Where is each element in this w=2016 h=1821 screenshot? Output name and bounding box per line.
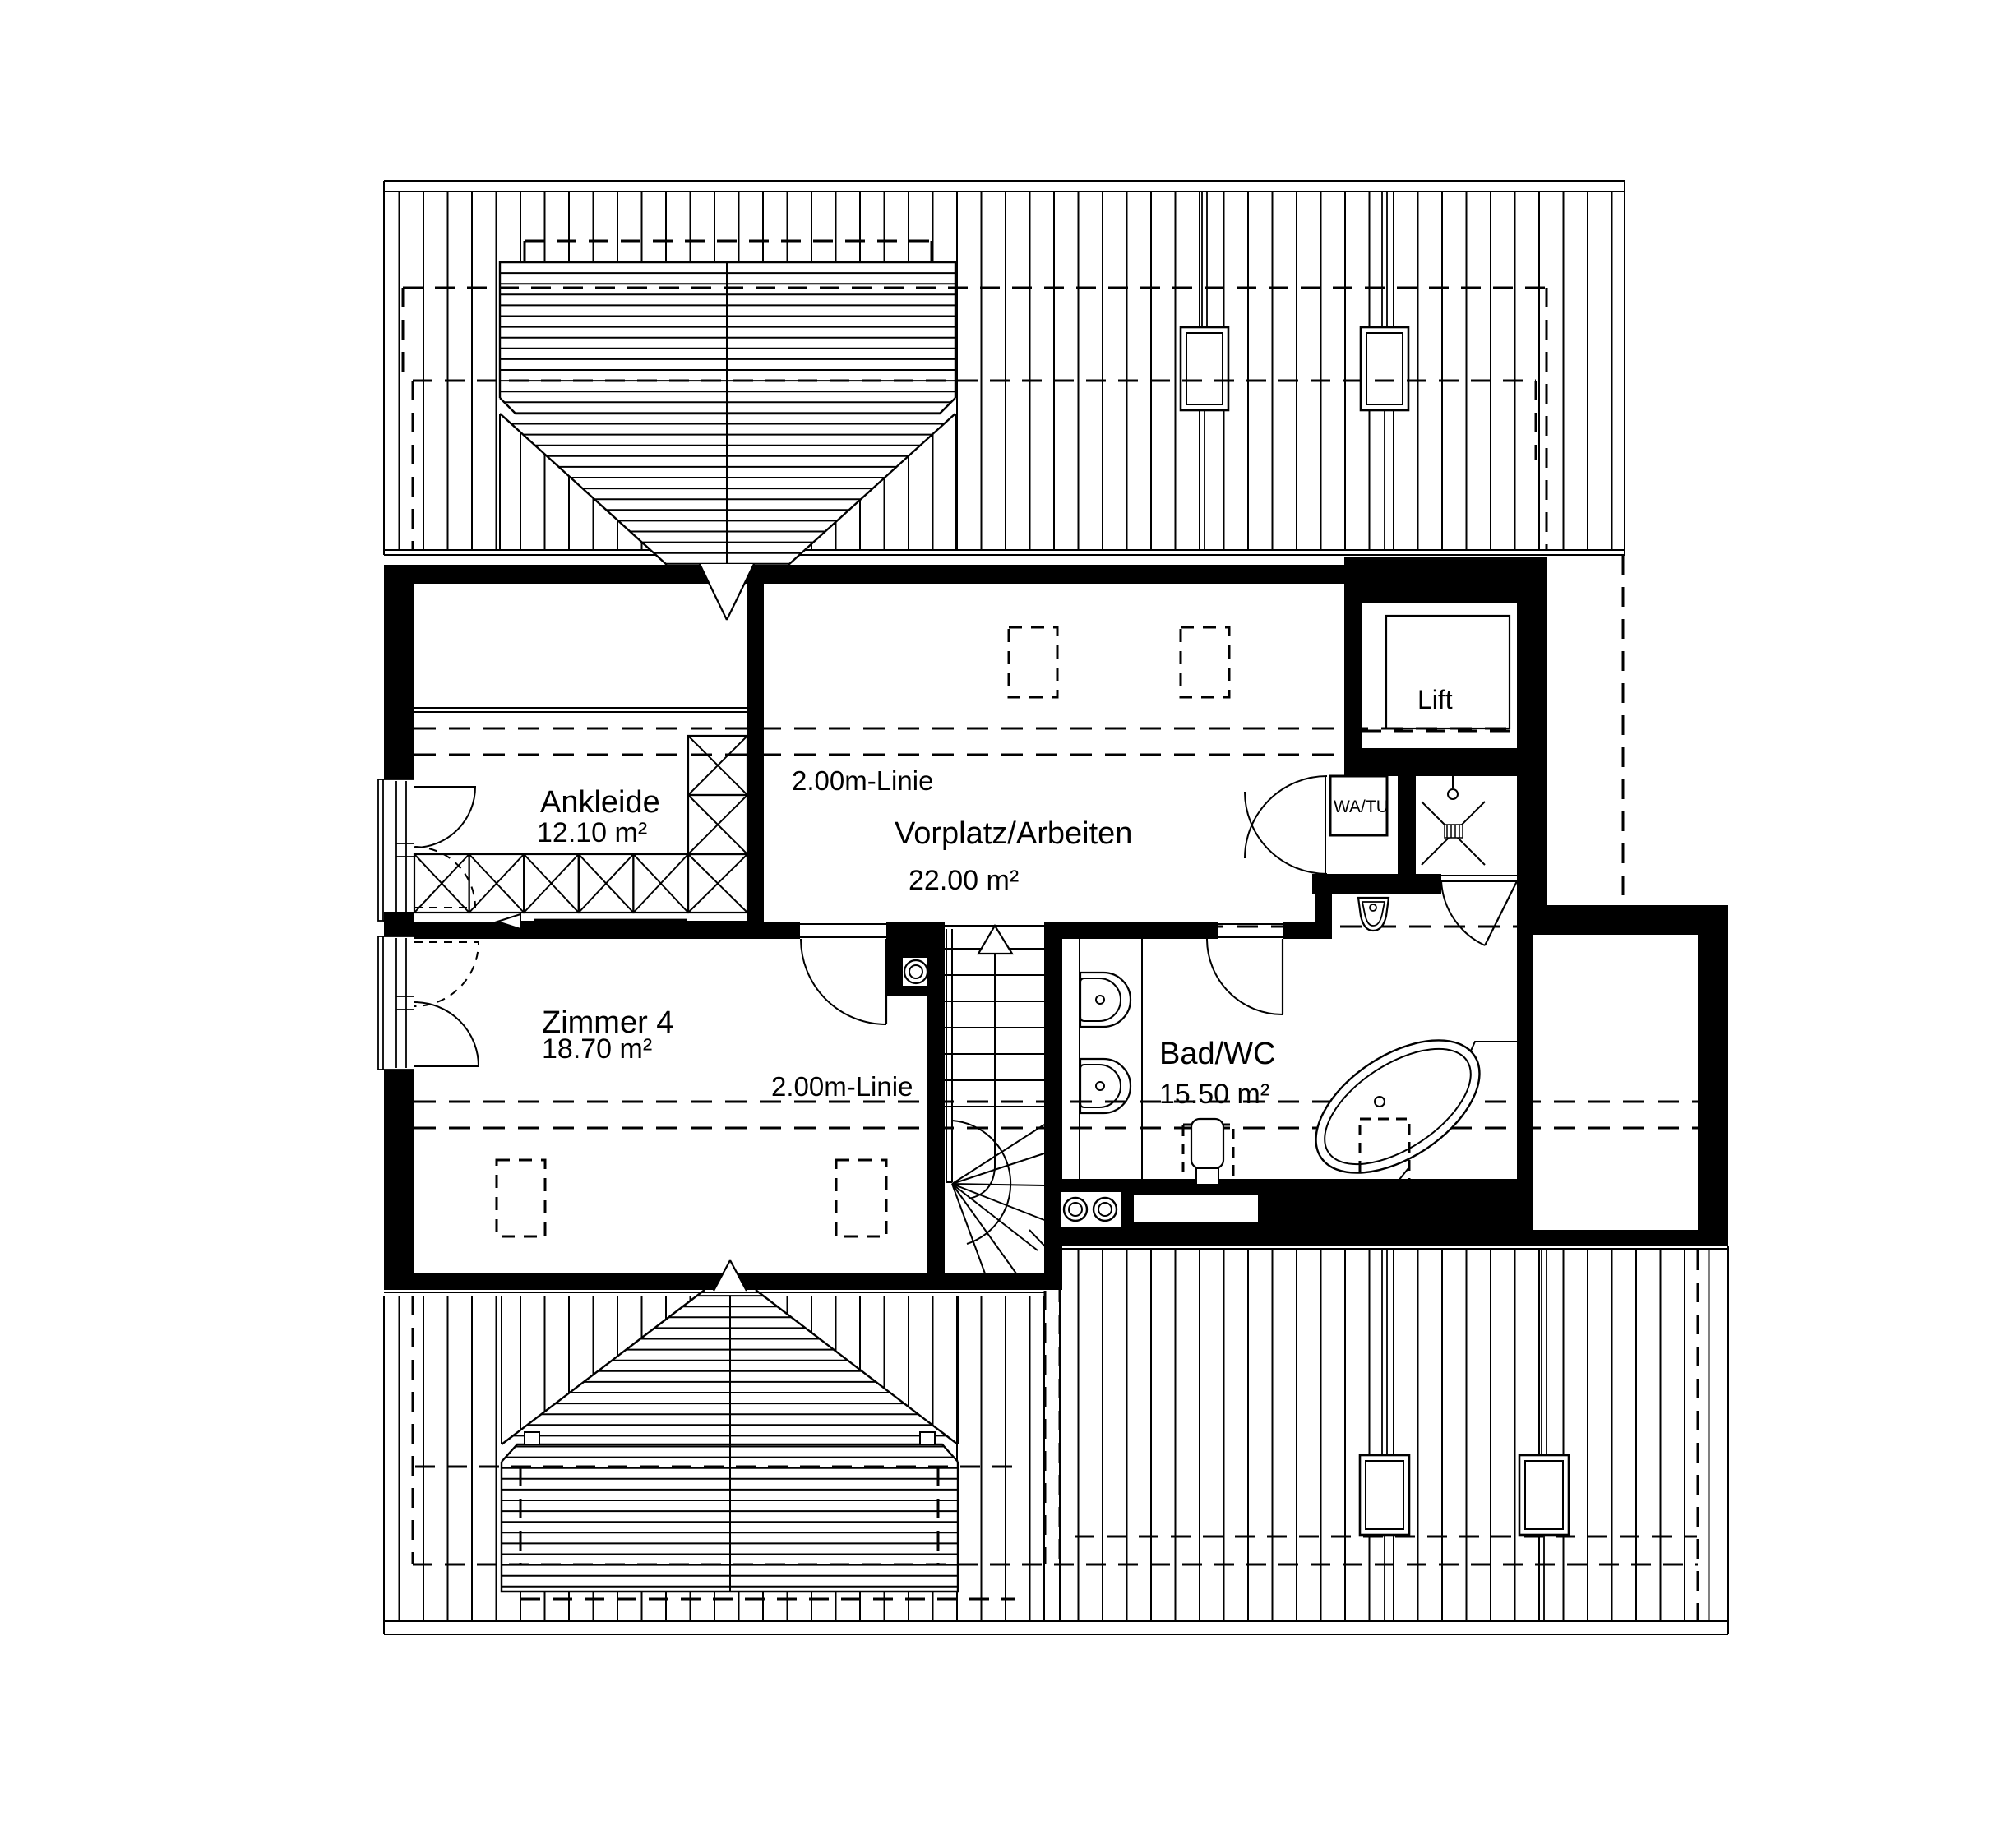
svg-text:2.00m-Linie: 2.00m-Linie [771,1071,913,1102]
svg-text:Ankleide: Ankleide [540,785,660,820]
svg-text:Lift: Lift [1417,685,1453,714]
svg-text:18.70 m²: 18.70 m² [542,1033,652,1065]
svg-text:2.00m-Linie: 2.00m-Linie [792,765,933,796]
svg-text:WA/TU: WA/TU [1334,797,1389,816]
svg-text:12.10 m²: 12.10 m² [537,817,647,848]
svg-text:15.50 m²: 15.50 m² [1159,1079,1269,1110]
svg-text:Vorplatz/Arbeiten: Vorplatz/Arbeiten [895,816,1132,851]
svg-text:Bad/WC: Bad/WC [1159,1037,1275,1071]
svg-text:22.00 m²: 22.00 m² [909,865,1019,896]
